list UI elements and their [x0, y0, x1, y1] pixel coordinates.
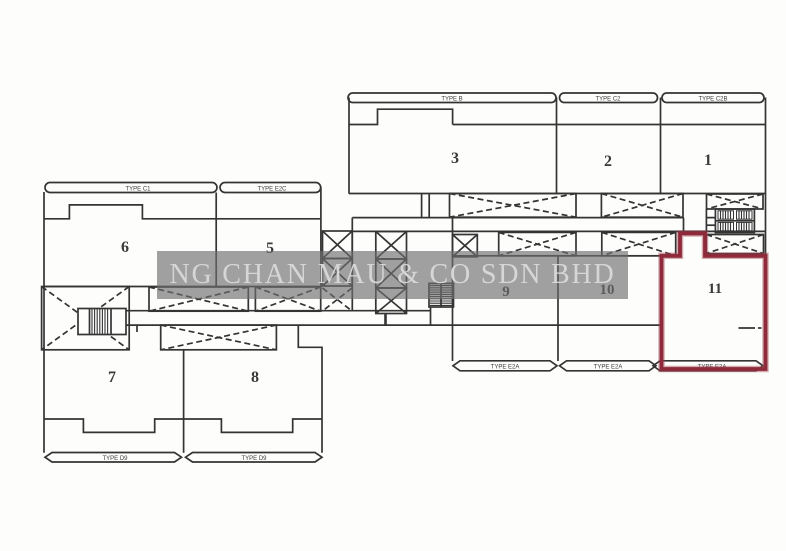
svg-text:TYPE D9: TYPE D9	[241, 456, 267, 462]
svg-text:11: 11	[708, 281, 722, 297]
svg-text:TYPE E2C: TYPE E2C	[257, 187, 287, 193]
svg-text:TYPE C1: TYPE C1	[125, 187, 151, 193]
svg-text:6: 6	[121, 239, 129, 256]
svg-text:8: 8	[251, 369, 259, 386]
svg-text:TYPE C2: TYPE C2	[595, 97, 621, 103]
svg-text:3: 3	[451, 150, 459, 167]
svg-text:TYPE E2A: TYPE E2A	[594, 364, 623, 370]
svg-text:1: 1	[704, 152, 712, 169]
svg-text:2: 2	[604, 153, 612, 170]
svg-text:TYPE D9: TYPE D9	[102, 456, 128, 462]
svg-text:TYPE B: TYPE B	[441, 97, 462, 103]
svg-text:7: 7	[108, 369, 116, 386]
svg-text:TYPE E2A: TYPE E2A	[491, 364, 520, 370]
svg-text:TYPE C2B: TYPE C2B	[698, 97, 727, 103]
